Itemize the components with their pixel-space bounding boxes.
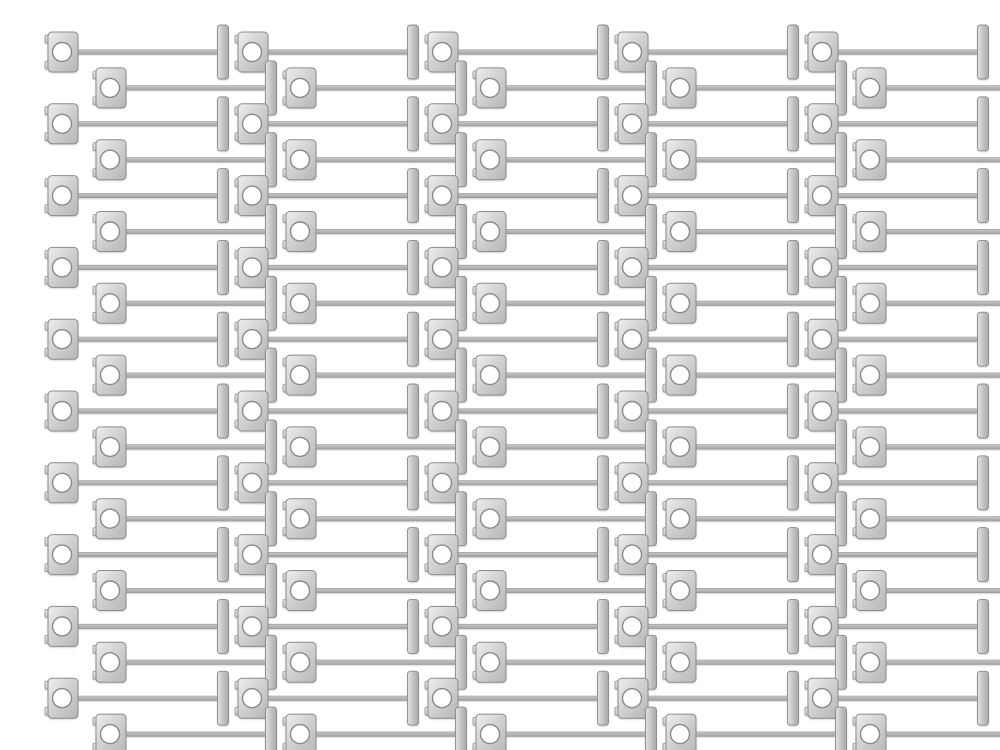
pin-rod (456, 265, 603, 269)
plate-eyelet-hole (243, 186, 262, 205)
product-photo (40, 16, 1000, 750)
plate-eyelet-hole (623, 473, 642, 492)
pin-rod (314, 588, 461, 592)
pin-t-bar (978, 528, 989, 582)
pin-rod (836, 337, 983, 341)
plate-eyelet-hole (101, 509, 120, 528)
pin-rod (124, 301, 271, 305)
plate-eyelet-hole (433, 473, 452, 492)
plate-eyelet-hole (433, 258, 452, 277)
pin-rod (694, 373, 841, 377)
pin-rod (124, 86, 271, 90)
plate-eyelet-hole (813, 43, 832, 62)
plate-eyelet-hole (243, 545, 262, 564)
pin-rod (124, 660, 271, 664)
plate-eyelet-hole (481, 294, 500, 313)
pin-t-bar (598, 599, 609, 653)
plate-eyelet-hole (53, 258, 72, 277)
plate-eyelet-hole (291, 509, 310, 528)
pin-rod (314, 445, 461, 449)
plate-eyelet-hole (623, 186, 642, 205)
pin-rod (884, 301, 1000, 305)
plate-eyelet-hole (243, 473, 262, 492)
pin-t-bar (788, 528, 799, 582)
plate-eyelet-hole (243, 689, 262, 708)
pin-rod (266, 337, 413, 341)
plate-eyelet-hole (53, 402, 72, 421)
plate-eyelet-hole (433, 43, 452, 62)
pin-t-bar (788, 240, 799, 294)
pin-t-bar (598, 240, 609, 294)
plate-eyelet-hole (623, 330, 642, 349)
plate-eyelet-hole (243, 617, 262, 636)
pin-t-bar (456, 707, 467, 750)
plate-eyelet-hole (433, 545, 452, 564)
plate-eyelet-hole (671, 581, 690, 600)
plate-eyelet-hole (291, 653, 310, 672)
plate-eyelet-hole (53, 689, 72, 708)
pin-rod (456, 122, 603, 126)
pin-rod (504, 373, 651, 377)
pin-t-bar (218, 312, 229, 366)
plate-eyelet-hole (861, 509, 880, 528)
plate-eyelet-hole (861, 725, 880, 744)
plate-eyelet-hole (53, 43, 72, 62)
plate-eyelet-hole (101, 653, 120, 672)
pin-rod (456, 552, 603, 556)
pin-rod (266, 409, 413, 413)
pin-rod (884, 229, 1000, 233)
pin-t-bar (598, 97, 609, 151)
pin-rod (504, 732, 651, 736)
pin-t-bar (218, 384, 229, 438)
pin-rod (646, 337, 793, 341)
plate-eyelet-hole (291, 294, 310, 313)
pin-rod (266, 265, 413, 269)
pin-rod (504, 301, 651, 305)
pin-t-bar (978, 384, 989, 438)
plate-eyelet-hole (101, 437, 120, 456)
pin-rod (456, 193, 603, 197)
pin-rod (314, 517, 461, 521)
plate-eyelet-hole (623, 402, 642, 421)
pin-rod (266, 122, 413, 126)
pin-rod (884, 373, 1000, 377)
pin-rod (884, 732, 1000, 736)
plate-eyelet-hole (481, 725, 500, 744)
plate-eyelet-hole (291, 78, 310, 97)
pin-rod (456, 481, 603, 485)
pin-rod (646, 409, 793, 413)
plate-eyelet-hole (243, 258, 262, 277)
plate-eyelet-hole (481, 437, 500, 456)
plate-eyelet-hole (671, 509, 690, 528)
fastener-pattern (40, 16, 1000, 750)
pin-rod (76, 696, 223, 700)
plate-eyelet-hole (813, 258, 832, 277)
pin-rod (646, 193, 793, 197)
pin-t-bar (408, 169, 419, 223)
pin-rod (836, 481, 983, 485)
plate-eyelet-hole (53, 545, 72, 564)
plate-eyelet-hole (481, 150, 500, 169)
plate-eyelet-hole (243, 330, 262, 349)
pin-rod (836, 122, 983, 126)
pin-rod (694, 517, 841, 521)
pin-rod (266, 696, 413, 700)
pin-rod (76, 265, 223, 269)
pin-rod (836, 409, 983, 413)
pin-t-bar (978, 599, 989, 653)
pin-rod (124, 373, 271, 377)
plate-eyelet-hole (861, 653, 880, 672)
pin-rod (314, 86, 461, 90)
pin-rod (314, 229, 461, 233)
pin-rod (76, 337, 223, 341)
plate-eyelet-hole (671, 366, 690, 385)
pin-t-bar (218, 169, 229, 223)
pin-t-bar (266, 707, 277, 750)
pin-rod (884, 158, 1000, 162)
plate-eyelet-hole (481, 653, 500, 672)
pin-t-bar (978, 312, 989, 366)
plate-eyelet-hole (861, 222, 880, 241)
plate-eyelet-hole (53, 114, 72, 133)
pin-rod (884, 517, 1000, 521)
pin-rod (456, 50, 603, 54)
pin-t-bar (978, 25, 989, 79)
plate-eyelet-hole (671, 294, 690, 313)
pin-rod (124, 229, 271, 233)
pin-t-bar (788, 671, 799, 725)
plate-eyelet-hole (243, 43, 262, 62)
plate-eyelet-hole (101, 222, 120, 241)
pin-t-bar (646, 707, 657, 750)
pin-rod (646, 624, 793, 628)
pin-t-bar (218, 599, 229, 653)
plate-eyelet-hole (813, 402, 832, 421)
pin-t-bar (218, 528, 229, 582)
pin-rod (836, 265, 983, 269)
plate-eyelet-hole (481, 509, 500, 528)
plate-eyelet-hole (433, 114, 452, 133)
pin-t-bar (408, 312, 419, 366)
plate-eyelet-hole (861, 437, 880, 456)
pin-t-bar (598, 456, 609, 510)
plate-eyelet-hole (291, 366, 310, 385)
plate-eyelet-hole (813, 330, 832, 349)
plate-eyelet-hole (101, 581, 120, 600)
pin-rod (836, 193, 983, 197)
pin-t-bar (408, 384, 419, 438)
plate-eyelet-hole (813, 617, 832, 636)
plate-eyelet-hole (53, 330, 72, 349)
pin-t-bar (978, 671, 989, 725)
pin-t-bar (408, 528, 419, 582)
pin-t-bar (218, 240, 229, 294)
plate-eyelet-hole (813, 114, 832, 133)
plate-eyelet-hole (433, 330, 452, 349)
plate-eyelet-hole (101, 150, 120, 169)
pin-rod (76, 552, 223, 556)
pin-t-bar (788, 312, 799, 366)
pin-rod (456, 696, 603, 700)
pin-t-bar (788, 599, 799, 653)
plate-eyelet-hole (671, 150, 690, 169)
pin-rod (266, 481, 413, 485)
plate-eyelet-hole (813, 186, 832, 205)
pin-t-bar (598, 169, 609, 223)
plate-eyelet-hole (861, 581, 880, 600)
plate-eyelet-hole (623, 689, 642, 708)
plate-eyelet-hole (243, 114, 262, 133)
pin-rod (124, 445, 271, 449)
pin-rod (694, 86, 841, 90)
pin-t-bar (788, 456, 799, 510)
plate-eyelet-hole (101, 78, 120, 97)
pin-t-bar (598, 528, 609, 582)
plate-eyelet-hole (291, 725, 310, 744)
plate-eyelet-hole (481, 581, 500, 600)
plate-eyelet-hole (671, 78, 690, 97)
pin-rod (266, 193, 413, 197)
pin-rod (836, 50, 983, 54)
plate-eyelet-hole (433, 689, 452, 708)
pin-rod (124, 588, 271, 592)
pin-rod (456, 624, 603, 628)
pin-rod (884, 445, 1000, 449)
pin-rod (646, 122, 793, 126)
plate-eyelet-hole (291, 222, 310, 241)
plate-eyelet-hole (623, 258, 642, 277)
pin-rod (884, 588, 1000, 592)
pin-rod (694, 588, 841, 592)
pin-rod (76, 193, 223, 197)
pin-rod (76, 481, 223, 485)
plate-eyelet-hole (861, 150, 880, 169)
pin-rod (456, 337, 603, 341)
plate-eyelet-hole (813, 473, 832, 492)
plate-eyelet-hole (101, 366, 120, 385)
pin-rod (884, 86, 1000, 90)
plate-eyelet-hole (433, 402, 452, 421)
pin-t-bar (408, 97, 419, 151)
pin-t-bar (408, 25, 419, 79)
pin-rod (836, 624, 983, 628)
plate-eyelet-hole (481, 222, 500, 241)
pin-rod (884, 660, 1000, 664)
plate-eyelet-hole (101, 725, 120, 744)
plate-eyelet-hole (671, 725, 690, 744)
pin-rod (694, 445, 841, 449)
plate-eyelet-hole (101, 294, 120, 313)
pin-rod (124, 158, 271, 162)
plate-eyelet-hole (813, 545, 832, 564)
plate-eyelet-hole (861, 366, 880, 385)
pin-rod (646, 50, 793, 54)
pin-t-bar (978, 169, 989, 223)
pin-t-bar (218, 25, 229, 79)
plate-eyelet-hole (433, 617, 452, 636)
pin-t-bar (408, 240, 419, 294)
plate-eyelet-hole (433, 186, 452, 205)
plate-eyelet-hole (623, 114, 642, 133)
pin-t-bar (598, 384, 609, 438)
pin-rod (124, 732, 271, 736)
plate-eyelet-hole (671, 222, 690, 241)
pin-rod (504, 517, 651, 521)
pin-rod (694, 229, 841, 233)
pin-rod (504, 86, 651, 90)
pin-t-bar (598, 671, 609, 725)
pin-rod (456, 409, 603, 413)
pin-rod (314, 660, 461, 664)
pin-t-bar (218, 671, 229, 725)
pin-rod (504, 445, 651, 449)
pin-rod (646, 552, 793, 556)
pin-rod (314, 158, 461, 162)
pin-rod (314, 373, 461, 377)
pin-rod (124, 517, 271, 521)
plate-eyelet-hole (243, 402, 262, 421)
plate-eyelet-hole (291, 150, 310, 169)
pin-t-bar (788, 169, 799, 223)
pin-rod (836, 552, 983, 556)
pin-t-bar (408, 671, 419, 725)
pin-rod (694, 732, 841, 736)
plate-eyelet-hole (291, 581, 310, 600)
plate-eyelet-hole (53, 617, 72, 636)
pin-rod (76, 624, 223, 628)
pin-t-bar (408, 599, 419, 653)
pin-rod (266, 624, 413, 628)
pin-t-bar (978, 240, 989, 294)
pin-rod (76, 122, 223, 126)
pin-t-bar (598, 312, 609, 366)
plate-eyelet-hole (671, 653, 690, 672)
plate-eyelet-hole (291, 437, 310, 456)
pin-rod (314, 301, 461, 305)
pin-rod (76, 409, 223, 413)
plate-eyelet-hole (53, 473, 72, 492)
pin-t-bar (218, 97, 229, 151)
pin-t-bar (218, 456, 229, 510)
pin-rod (646, 696, 793, 700)
pin-t-bar (978, 97, 989, 151)
pin-t-bar (788, 25, 799, 79)
pin-rod (646, 481, 793, 485)
pin-t-bar (408, 456, 419, 510)
pin-rod (504, 229, 651, 233)
plate-eyelet-hole (481, 366, 500, 385)
pin-rod (76, 50, 223, 54)
plate-eyelet-hole (813, 689, 832, 708)
plate-eyelet-hole (861, 294, 880, 313)
pin-t-bar (978, 456, 989, 510)
pin-rod (694, 301, 841, 305)
pin-rod (266, 50, 413, 54)
pin-t-bar (788, 384, 799, 438)
plate-eyelet-hole (623, 617, 642, 636)
pin-rod (504, 158, 651, 162)
plate-eyelet-hole (623, 545, 642, 564)
pin-rod (646, 265, 793, 269)
plate-eyelet-hole (623, 43, 642, 62)
pin-rod (694, 660, 841, 664)
plate-eyelet-hole (861, 78, 880, 97)
pin-t-bar (788, 97, 799, 151)
plate-eyelet-hole (53, 186, 72, 205)
pin-rod (694, 158, 841, 162)
pin-rod (504, 588, 651, 592)
pin-rod (836, 696, 983, 700)
pin-t-bar (836, 707, 847, 750)
pin-t-bar (598, 25, 609, 79)
pin-rod (314, 732, 461, 736)
pin-rod (504, 660, 651, 664)
pin-rod (266, 552, 413, 556)
plate-eyelet-hole (671, 437, 690, 456)
plate-eyelet-hole (481, 78, 500, 97)
